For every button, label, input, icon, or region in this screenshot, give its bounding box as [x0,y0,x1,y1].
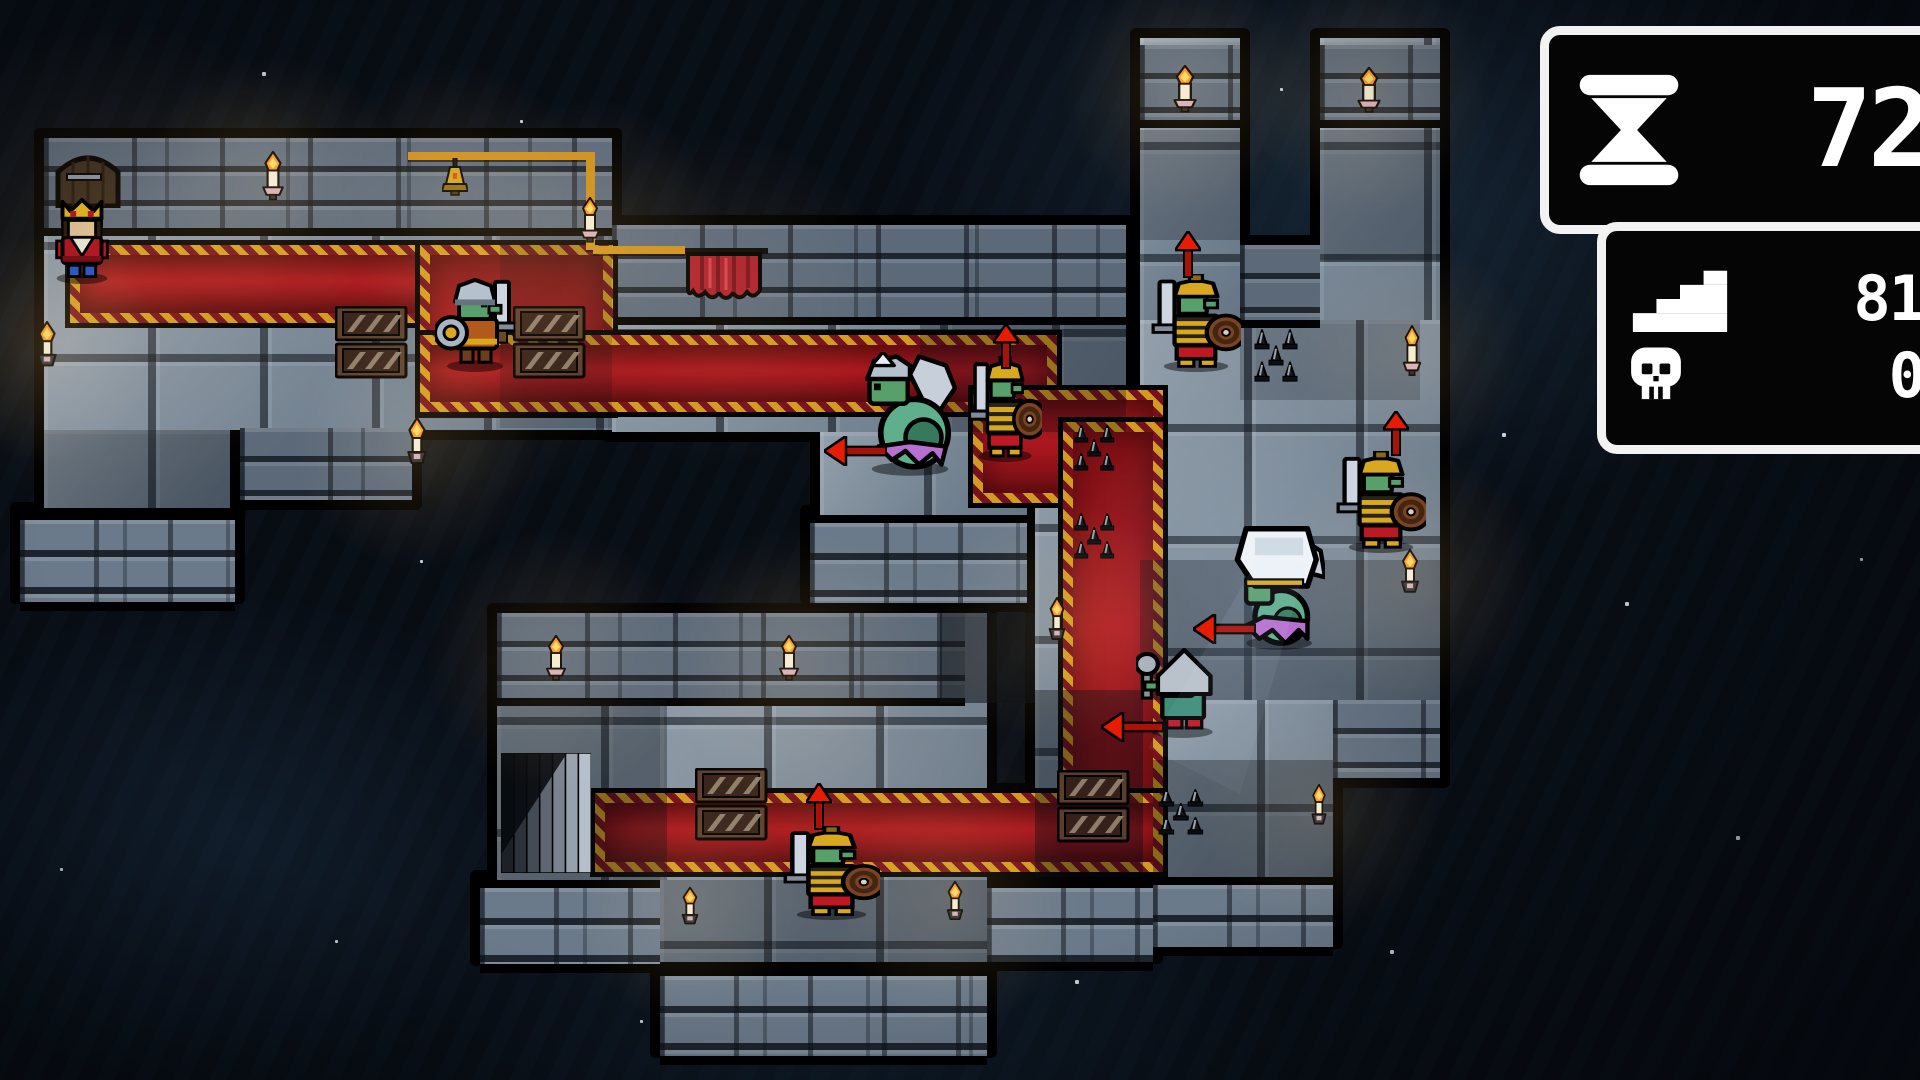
entity-goblin-soldier[interactable] [435,274,515,372]
hourglass-icon [1571,56,1687,204]
turns-panel: 72 [1540,26,1920,234]
entity-king[interactable] [45,198,119,284]
attack-arrow-up [806,783,832,831]
skull-icon [1624,342,1688,410]
entity-armored-goblin[interactable] [1151,274,1241,372]
kills-row: 0 [1624,342,1920,410]
turns-count: 72 [1807,76,1920,184]
steps-count: 81 [1853,268,1920,330]
attack-arrow-up [1383,411,1409,457]
stairs-icon [1624,266,1736,332]
attack-arrow-left [824,436,888,466]
attack-arrow-left [1101,712,1165,742]
attack-arrow-left [1193,614,1257,644]
entity-armored-goblin[interactable] [783,826,880,920]
attack-arrow-up [993,324,1019,370]
stats-panel: 81 0 [1597,222,1920,454]
steps-row: 81 [1624,266,1920,332]
entity-armored-goblin[interactable] [1336,451,1426,553]
game-viewport[interactable]: 72 81 0 [0,0,1920,1080]
attack-arrow-up [1175,231,1201,279]
entity-armored-goblin[interactable] [968,356,1042,462]
kills-count: 0 [1889,345,1920,407]
